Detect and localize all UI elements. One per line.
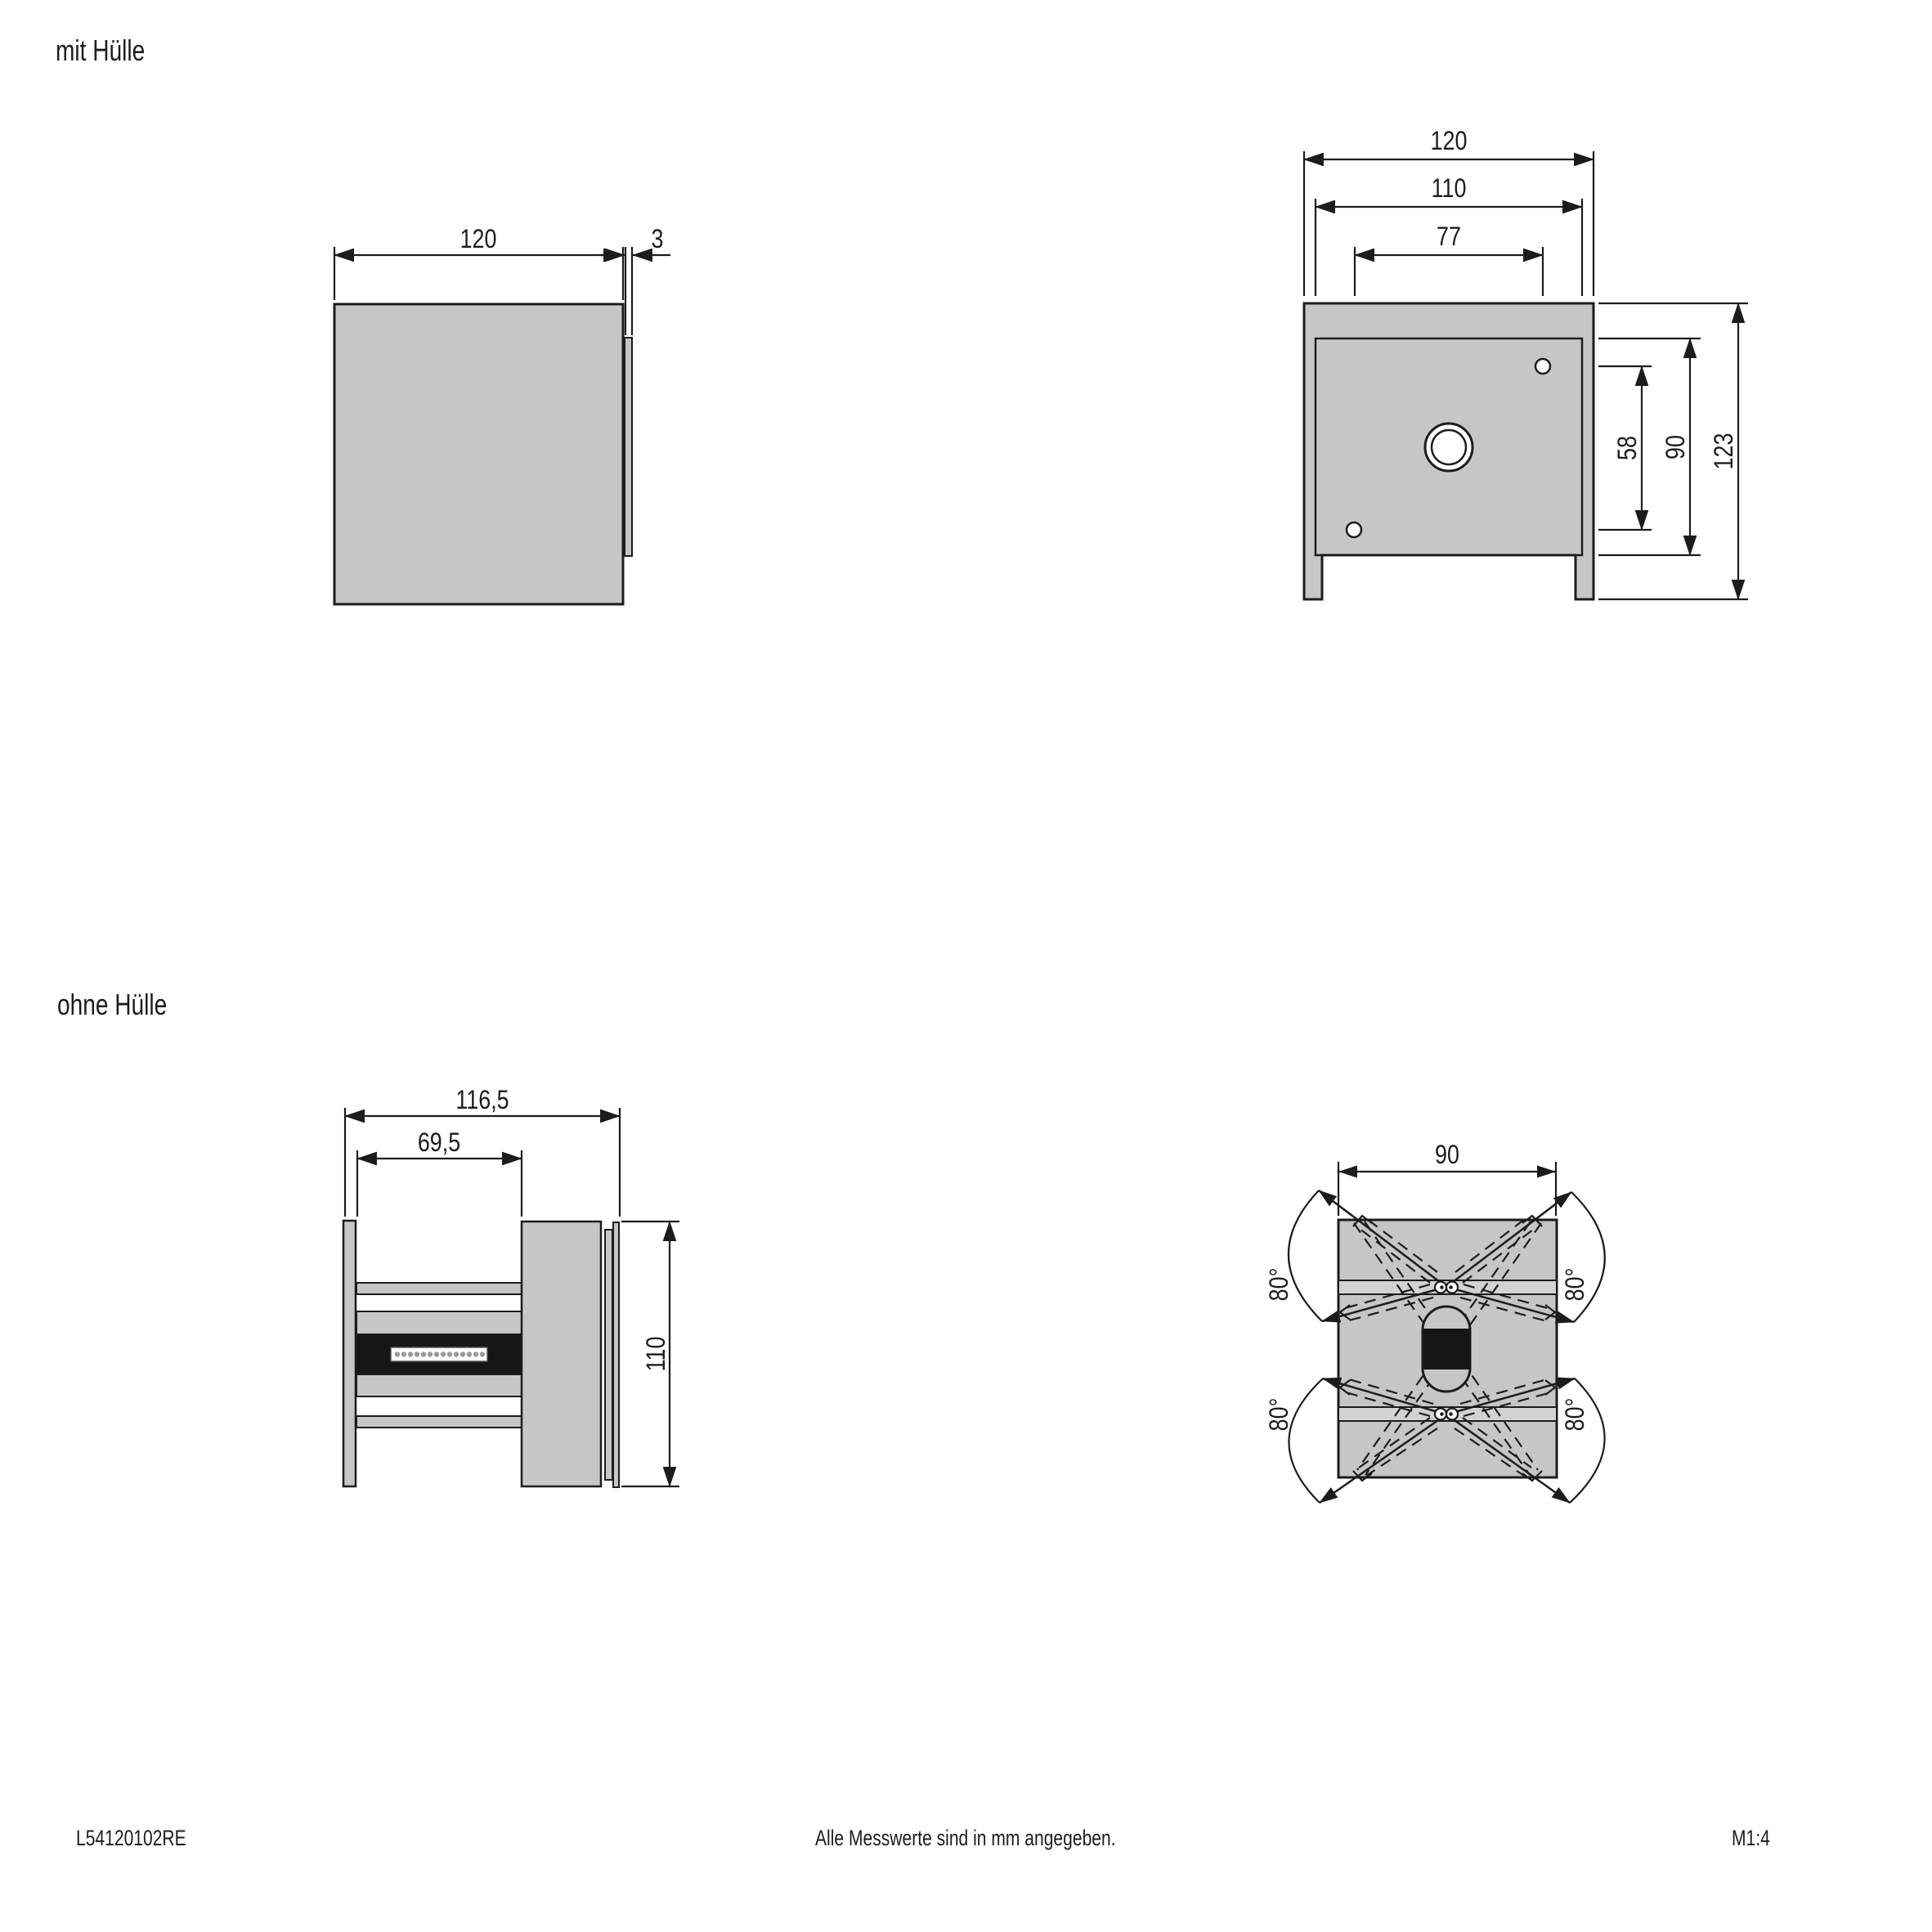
back-with-cover-drawing: 120 110 77 58 90 123 — [1275, 106, 1782, 638]
dim-90-open — [1338, 1162, 1556, 1216]
dim-label-back-width: 120 — [1431, 127, 1468, 156]
wall-plate-edge — [613, 1222, 619, 1487]
footer-drawing-number: L54120102RE — [76, 1826, 186, 1851]
angle-label-bottom-right: 80° — [1561, 1398, 1590, 1432]
dim-77-back — [1355, 247, 1543, 296]
housing-front-face — [334, 304, 623, 604]
dim-label-total-height: 123 — [1710, 433, 1739, 470]
housing-block-side — [522, 1222, 601, 1486]
dim-label-side-height: 110 — [642, 1337, 671, 1372]
footer-scale: M1:4 — [1732, 1826, 1770, 1851]
screw-hole-bottom-left — [1347, 522, 1361, 537]
dim-label-open-width: 90 — [1435, 1141, 1459, 1170]
dim-label-front-width: 120 — [460, 225, 497, 254]
section-label-without-cover: ohne Hülle — [57, 988, 167, 1022]
footer-note: Alle Messwerte sind in mm angegeben. — [815, 1826, 1116, 1851]
dim-label-cover-thickness: 3 — [652, 225, 664, 254]
cable-hole-inner — [1432, 430, 1466, 464]
view-front-with-cover: 120 3 — [311, 204, 695, 642]
front-plate-edge — [343, 1221, 356, 1486]
back-without-cover-drawing: 90 80° 80° 80° 80° — [1226, 1136, 1684, 1545]
drawing-sheet: { "labels": { "with_cover": "mit Hülle",… — [0, 0, 1932, 1932]
side-without-cover-drawing: 116,5 69,5 110 — [319, 1087, 711, 1529]
dim-120-front — [334, 247, 623, 300]
view-back-without-cover: 90 80° 80° 80° 80° — [1226, 1136, 1684, 1549]
dim-116-5 — [345, 1108, 620, 1217]
dim-69-5 — [357, 1150, 522, 1217]
screw-hole-top-right — [1535, 359, 1550, 374]
section-label-with-cover: mit Hülle — [56, 34, 145, 68]
dim-label-depth: 116,5 — [455, 1086, 509, 1115]
view-side-without-cover: 116,5 69,5 110 — [319, 1087, 711, 1533]
dim-label-inner-depth: 69,5 — [418, 1128, 460, 1158]
angle-label-top-right: 80° — [1561, 1268, 1590, 1302]
dim-label-hole-spacing-height: 58 — [1613, 436, 1643, 460]
lamp-head-back — [1423, 1329, 1470, 1369]
dim-label-inner-height: 90 — [1661, 435, 1691, 459]
view-back-with-cover: 120 110 77 58 90 123 — [1275, 106, 1782, 642]
dim-label-hole-spacing-width: 77 — [1437, 222, 1461, 252]
spacer-strip — [605, 1230, 612, 1480]
cover-edge-strip — [625, 338, 632, 556]
angle-label-bottom-left: 80° — [1265, 1398, 1294, 1432]
angle-label-top-left: 80° — [1265, 1268, 1294, 1302]
front-with-cover-drawing: 120 3 — [311, 204, 695, 638]
dim-label-inner-width: 110 — [1432, 174, 1467, 204]
